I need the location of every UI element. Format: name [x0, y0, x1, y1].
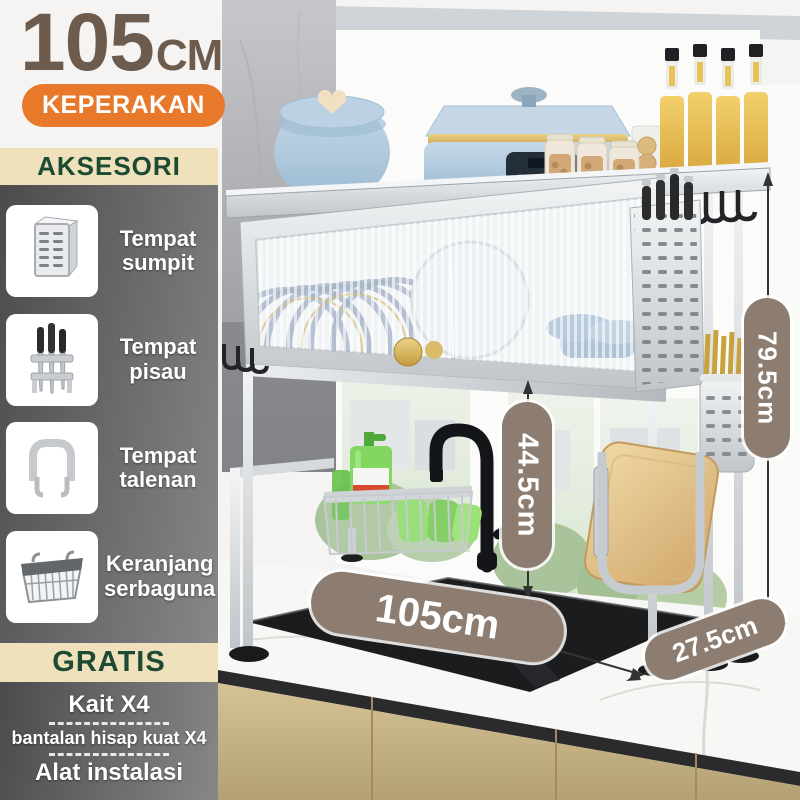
dimension-total-height: 79.5cm: [744, 298, 790, 458]
dimension-clearance-height: 44.5cm: [502, 402, 552, 568]
variant-badge: KEPERAKAN: [22, 84, 225, 127]
accessory-label: Tempat sumpit: [104, 227, 212, 276]
chopstick-holder-thumbnail: [6, 205, 98, 297]
wire-basket-icon: [9, 534, 95, 620]
dashed-divider: [49, 722, 169, 725]
accessories-title: AKSESORI: [0, 148, 218, 185]
chopstick-holder-icon: [9, 208, 95, 294]
accessories-sidebar: AKSESORI: [0, 148, 218, 800]
free-items-title: GRATIS: [0, 643, 218, 682]
knife-holder-icon: [9, 317, 95, 403]
accessory-label: Keranjang serbaguna: [104, 552, 215, 601]
free-item: bantalan hisap kuat X4: [11, 728, 206, 749]
cutting-board-hook-thumbnail: [6, 422, 98, 514]
accessories-list: Tempat sumpit: [0, 185, 218, 643]
cutting-board-hook-icon: [9, 425, 95, 511]
size-value: 105: [20, 2, 154, 84]
dashed-divider: [49, 753, 169, 756]
accessory-item-chopstick-holder: Tempat sumpit: [6, 205, 212, 297]
cabinet-knob: [394, 338, 422, 366]
product-size-title: 105 CM: [20, 2, 222, 84]
accessory-item-board-hook: Tempat talenan: [6, 422, 212, 514]
accessory-label: Tempat talenan: [104, 444, 212, 493]
free-item: Kait X4: [68, 691, 149, 719]
wire-basket-thumbnail: [6, 531, 98, 623]
accessory-item-basket: Keranjang serbaguna: [6, 531, 212, 623]
accessory-item-knife-holder: Tempat pisau: [6, 314, 212, 406]
free-items-list: Kait X4 bantalan hisap kuat X4 Alat inst…: [0, 682, 218, 800]
size-unit: CM: [156, 34, 222, 78]
suction-foot: [229, 646, 269, 662]
knife-holder-thumbnail: [6, 314, 98, 406]
free-item: Alat instalasi: [35, 759, 183, 787]
cutting-board: [582, 440, 720, 595]
cabinet-knob: [425, 341, 443, 359]
accessory-label: Tempat pisau: [104, 335, 212, 384]
product-image: 105 CM KEPERAKAN AKSESORI: [0, 0, 800, 800]
